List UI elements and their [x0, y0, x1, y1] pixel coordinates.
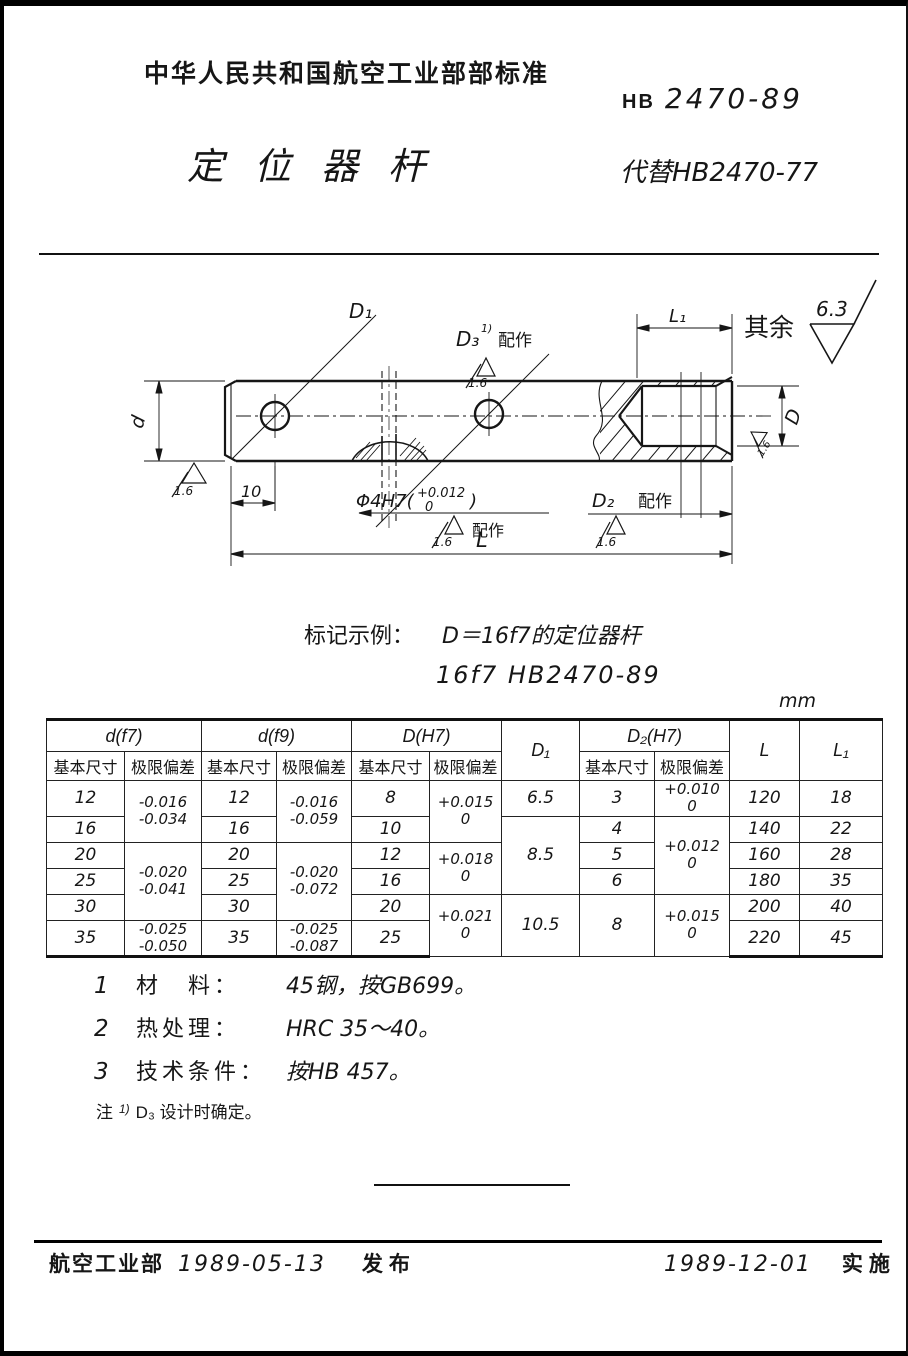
- roughness-16-d3-value: 1.6: [468, 376, 487, 390]
- table-row: 20 -0.020 -0.041 20 -0.020 -0.072 12 +0.…: [47, 842, 883, 868]
- label-fit-note-3: 配作: [638, 492, 672, 511]
- cell: 10: [352, 816, 430, 842]
- marking-example: 标记示例： D＝16f7的定位器杆: [304, 618, 641, 650]
- rod-outline: [225, 381, 732, 461]
- cell: +0.021 0: [430, 894, 502, 957]
- label-d2: D₂: [592, 490, 615, 512]
- cell: 8.5: [502, 816, 580, 894]
- cell: -0.016 -0.034: [125, 781, 202, 843]
- right-end-section: [541, 351, 831, 518]
- cell: 8: [352, 781, 430, 817]
- cell: 35: [202, 920, 277, 957]
- standard-code-prefix: HB: [622, 91, 655, 114]
- footer-issue: 航空工业部 1989-05-13 发布: [49, 1248, 416, 1278]
- table-group-header-row: d(f7) d(f9) D(H7) D₁ D₂(H7) L L₁: [47, 720, 883, 752]
- standard-code-number: 2470-89: [665, 82, 803, 115]
- cell: 6: [580, 868, 655, 894]
- roughness-16-D: 1.6: [743, 425, 778, 459]
- label-d1: D₁: [349, 299, 372, 323]
- cell: 25: [202, 868, 277, 894]
- col-dev-3: 极限偏差: [430, 752, 502, 781]
- label-D: D: [781, 406, 807, 427]
- cell: -0.025 -0.087: [277, 920, 352, 957]
- cell: 16: [47, 816, 125, 842]
- cell: +0.015 0: [655, 894, 730, 957]
- cell: 20: [47, 842, 125, 868]
- standard-document-page: 中华人民共和国航空工业部部标准 HB 2470-89 定位器杆 代替HB2470…: [0, 0, 908, 1356]
- page-title: 定位器杆: [187, 136, 455, 190]
- cell: +0.010 0: [655, 781, 730, 817]
- note-text: HRC 35～40。: [286, 1011, 440, 1043]
- footer-impl-date: 1989-12-01: [664, 1252, 812, 1277]
- cell: 20: [352, 894, 430, 920]
- rest-roughness-label: 其余: [744, 314, 794, 342]
- cell: 12: [202, 781, 277, 817]
- cell: -0.025 -0.050: [125, 920, 202, 957]
- cell: 12: [47, 781, 125, 817]
- cell: +0.015 0: [430, 781, 502, 843]
- roughness-16-phi4-value: 1.6: [433, 535, 452, 549]
- label-fit-note-1: 配作: [498, 331, 532, 350]
- col-basic-1: 基本尺寸: [47, 752, 125, 781]
- note-number: 3: [94, 1059, 136, 1085]
- cell: 16: [352, 868, 430, 894]
- col-L1: L₁: [800, 720, 883, 781]
- cell: 6.5: [502, 781, 580, 817]
- note-label: 技术条件：: [136, 1054, 286, 1086]
- header-divider: [39, 253, 879, 255]
- col-group-d-f9: d(f9): [202, 720, 352, 752]
- technical-drawing: D₁ D₃ 1) 配作 1.6: [4, 266, 908, 611]
- footnote-superscript: 1): [119, 1102, 130, 1116]
- col-dev-4: 极限偏差: [655, 752, 730, 781]
- cell: 45: [800, 920, 883, 957]
- cell: 35: [800, 868, 883, 894]
- dim-10: [231, 466, 275, 566]
- col-L: L: [730, 720, 800, 781]
- cell: 20: [202, 842, 277, 868]
- cell: 180: [730, 868, 800, 894]
- cell: -0.020 -0.041: [125, 842, 202, 920]
- footer-divider: [34, 1240, 882, 1243]
- cell: 8: [580, 894, 655, 957]
- svg-text:1.6: 1.6: [756, 439, 774, 458]
- col-group-D-H7: D(H7): [352, 720, 502, 752]
- cell: 35: [47, 920, 125, 957]
- col-dev-1: 极限偏差: [125, 752, 202, 781]
- footer-issue-date: 1989-05-13: [178, 1252, 326, 1277]
- cell: 140: [730, 816, 800, 842]
- phi4-tol-lower: 0: [425, 500, 433, 515]
- footnote: 注 1) D₃ 设计时确定。: [96, 1098, 262, 1123]
- cell: 25: [352, 920, 430, 957]
- note-label: 热处理：: [136, 1011, 286, 1043]
- cell: 28: [800, 842, 883, 868]
- label-d3-sup: 1): [481, 322, 492, 335]
- label-L1: L₁: [669, 306, 686, 327]
- roughness-16-left-value: 1.6: [174, 484, 193, 498]
- cell: 10.5: [502, 894, 580, 957]
- cell: 3: [580, 781, 655, 817]
- cell: 16: [202, 816, 277, 842]
- dim-d: [144, 381, 225, 461]
- cell: -0.020 -0.072: [277, 842, 352, 920]
- note-label: 材 料：: [136, 968, 286, 1000]
- cell: 30: [47, 894, 125, 920]
- cell: 18: [800, 781, 883, 817]
- marking-example-label: 标记示例：: [304, 618, 414, 650]
- note-number: 2: [94, 1016, 136, 1042]
- cell: -0.016 -0.059: [277, 781, 352, 843]
- footer-impl-word: 实施: [842, 1248, 896, 1278]
- cell: 200: [730, 894, 800, 920]
- cell: 120: [730, 781, 800, 817]
- note-text: 45钢，按GB699。: [286, 968, 476, 1000]
- marking-example-line2: 16f7 HB2470-89: [436, 661, 661, 689]
- col-basic-4: 基本尺寸: [580, 752, 655, 781]
- marking-example-line1: D＝16f7的定位器杆: [442, 618, 641, 650]
- unit-label: mm: [779, 690, 816, 712]
- footer-issuer: 航空工业部: [49, 1248, 164, 1278]
- roughness-16-d2-value: 1.6: [597, 535, 616, 549]
- col-basic-3: 基本尺寸: [352, 752, 430, 781]
- note-number: 1: [94, 973, 136, 999]
- col-group-d-f7: d(f7): [47, 720, 202, 752]
- rest-roughness-symbol: [810, 280, 876, 363]
- cell: 160: [730, 842, 800, 868]
- section-divider: [374, 1184, 570, 1186]
- rest-roughness-value: 6.3: [816, 297, 848, 321]
- note-technical-conditions: 3 技术条件： 按HB 457。: [94, 1054, 411, 1086]
- col-dev-2: 极限偏差: [277, 752, 352, 781]
- table-row: 12 -0.016 -0.034 12 -0.016 -0.059 8 +0.0…: [47, 781, 883, 817]
- cell: 12: [352, 842, 430, 868]
- phi4-label: Φ4H7(: [356, 491, 415, 512]
- standard-code: HB 2470-89: [622, 82, 803, 115]
- cell: 25: [47, 868, 125, 894]
- footer-issue-word: 发布: [362, 1248, 416, 1278]
- cell: 220: [730, 920, 800, 957]
- cell: 22: [800, 816, 883, 842]
- phi4-tol-upper: +0.012: [417, 486, 465, 501]
- replaces-note: 代替HB2470-77: [620, 152, 818, 189]
- label-10: 10: [241, 482, 261, 501]
- label-d: d: [126, 412, 151, 430]
- label-L: L: [476, 528, 488, 552]
- org-standard-name: 中华人民共和国航空工业部部标准: [144, 54, 549, 90]
- note-material: 1 材 料： 45钢，按GB699。: [94, 968, 476, 1000]
- footer-implementation: 1989-12-01 实施: [664, 1248, 896, 1278]
- note-heat-treatment: 2 热处理： HRC 35～40。: [94, 1011, 440, 1043]
- note-text: 按HB 457。: [286, 1054, 411, 1086]
- footnote-text: D₃ 设计时确定。: [136, 1098, 262, 1123]
- col-group-D2-H7: D₂(H7): [580, 720, 730, 752]
- cell: +0.018 0: [430, 842, 502, 894]
- dimension-table: d(f7) d(f9) D(H7) D₁ D₂(H7) L L₁ 基本尺寸 极限…: [46, 718, 882, 958]
- cell: 40: [800, 894, 883, 920]
- cell: 5: [580, 842, 655, 868]
- cell: 4: [580, 816, 655, 842]
- label-d3: D₃: [456, 327, 479, 351]
- col-D1: D₁: [502, 720, 580, 781]
- cell: +0.012 0: [655, 816, 730, 894]
- cell: 30: [202, 894, 277, 920]
- col-basic-2: 基本尺寸: [202, 752, 277, 781]
- phi4-label-close: ): [468, 491, 477, 512]
- footnote-label: 注: [96, 1098, 113, 1123]
